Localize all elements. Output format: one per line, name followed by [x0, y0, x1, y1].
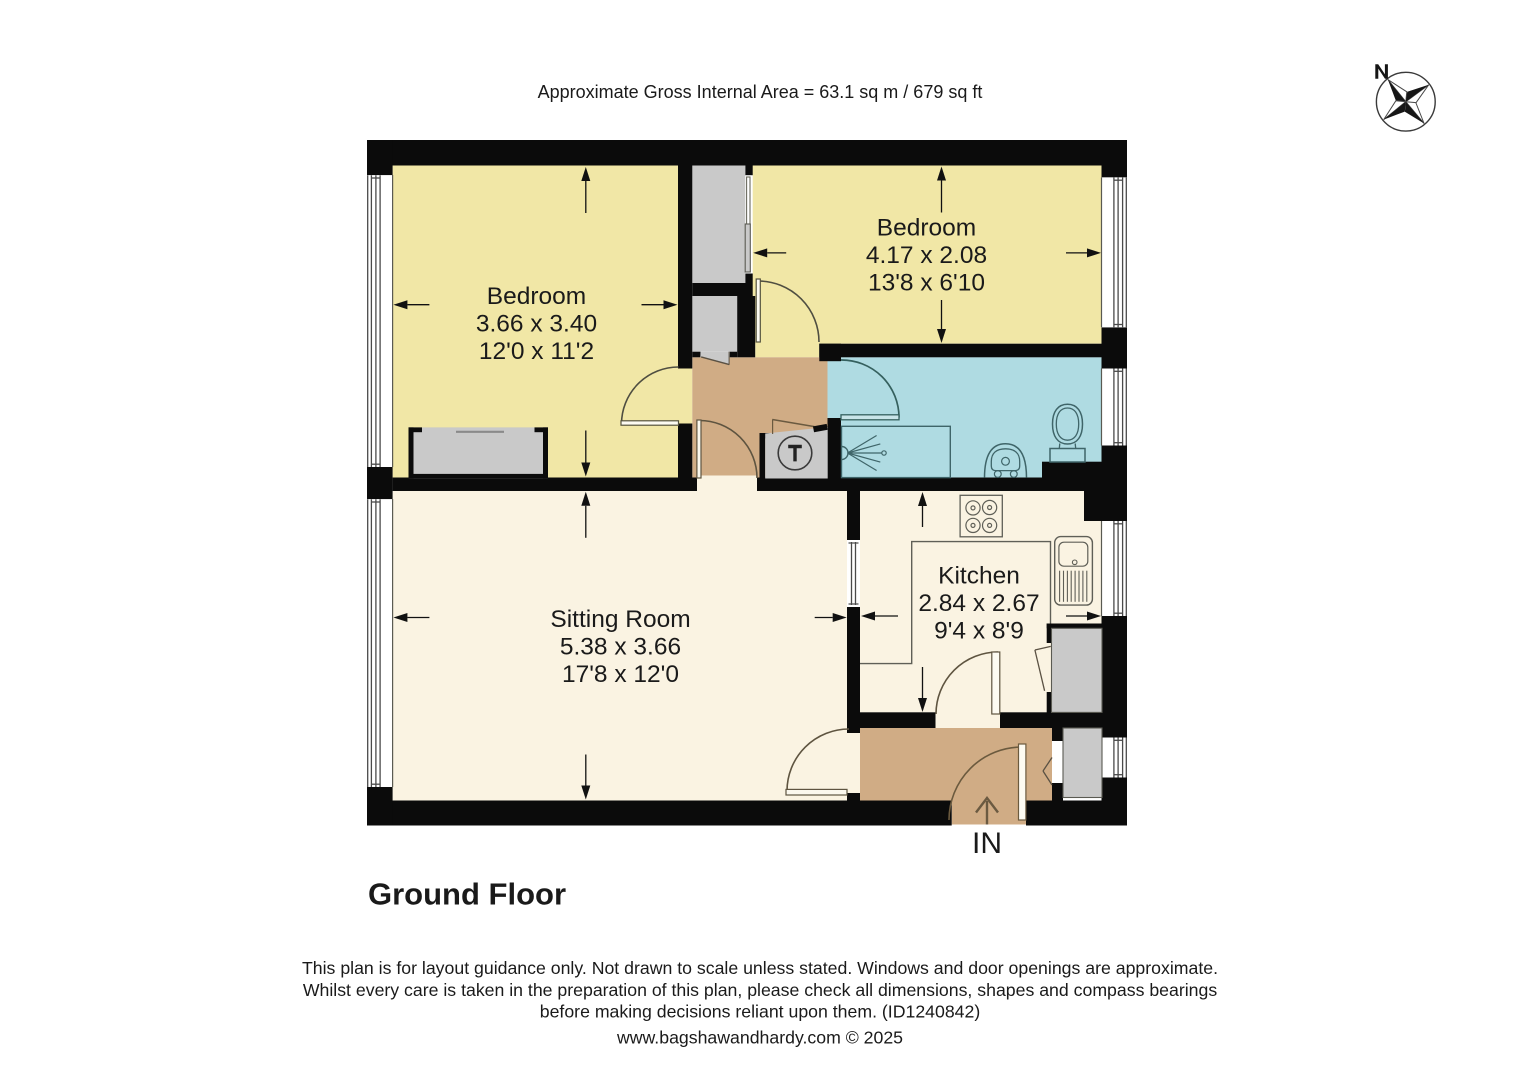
svg-text:Whilst every care is taken in: Whilst every care is taken in the prepar… — [303, 980, 1217, 1000]
svg-text:Bedroom: Bedroom — [487, 283, 586, 310]
svg-text:Sitting Room: Sitting Room — [550, 606, 690, 633]
svg-text:13'8 x 6'10: 13'8 x 6'10 — [868, 270, 985, 297]
svg-text:Kitchen: Kitchen — [938, 563, 1020, 590]
svg-text:12'0 x 11'2: 12'0 x 11'2 — [479, 338, 594, 365]
svg-text:5.38 x 3.66: 5.38 x 3.66 — [560, 634, 681, 661]
svg-text:Ground Floor: Ground Floor — [368, 877, 566, 912]
svg-text:Approximate Gross Internal Are: Approximate Gross Internal Area = 63.1 s… — [538, 82, 983, 102]
svg-text:2.84 x 2.67: 2.84 x 2.67 — [918, 590, 1039, 617]
svg-text:3.66 x 3.40: 3.66 x 3.40 — [476, 311, 597, 338]
svg-text:17'8 x 12'0: 17'8 x 12'0 — [562, 661, 679, 688]
svg-text:9'4 x 8'9: 9'4 x 8'9 — [934, 618, 1024, 645]
svg-text:Bedroom: Bedroom — [877, 215, 976, 242]
svg-text:4.17 x 2.08: 4.17 x 2.08 — [866, 242, 987, 269]
svg-text:IN: IN — [972, 827, 1002, 860]
svg-text:www.bagshawandhardy.com © 2025: www.bagshawandhardy.com © 2025 — [616, 1028, 903, 1048]
svg-text:before making decisions relian: before making decisions reliant upon the… — [540, 1002, 980, 1022]
svg-text:This plan is for layout guidan: This plan is for layout guidance only. N… — [302, 958, 1218, 978]
